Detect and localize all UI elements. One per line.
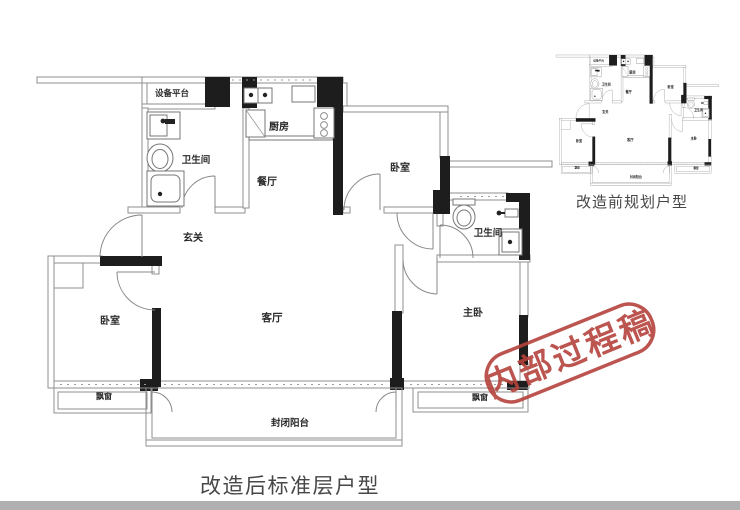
floorplan-image: 设备平台 卫生间 厨房 餐厅 玄关 卧室 卧室 客厅 卫生间 主卧 飘窗 飘窗 … [0, 0, 740, 510]
room-label-master-bedroom: 主卧 [463, 306, 483, 319]
room-label-entry: 玄关 [183, 231, 203, 244]
kitchen-counter-icon [292, 86, 315, 102]
room-label-bathroom-1: 卫生间 [182, 154, 211, 166]
floorplan-svg: 设备平台 卫生间 厨房 餐厅 玄关 卧室 卧室 客厅 卫生间 主卧 飘窗 飘窗 … [0, 0, 740, 510]
kitchen-sink-icon [244, 88, 272, 103]
toilet-2-icon [453, 199, 475, 229]
room-label-balcony: 封闭阳台 [271, 417, 310, 429]
bathtub-icon [147, 171, 184, 206]
fridge-icon [246, 110, 265, 137]
room-label-bay-window-right: 飘窗 [472, 392, 488, 402]
room-label-bay-window-left: 飘窗 [96, 391, 112, 401]
room-label-kitchen: 厨房 [269, 120, 289, 133]
room-label-dining: 餐厅 [256, 175, 277, 188]
main-caption: 改造后标准层户型 [200, 474, 380, 498]
room-label-bathroom-2: 卫生间 [474, 227, 503, 239]
toilet-icon [147, 144, 173, 172]
stove-icon [314, 108, 334, 138]
room-label-living: 客厅 [261, 311, 283, 324]
footer-bar [0, 501, 740, 510]
room-label-equipment-platform: 设备平台 [155, 88, 190, 99]
thumbnail-caption: 改造前规划户型 [576, 193, 688, 211]
room-label-bedroom-top: 卧室 [390, 161, 410, 174]
room-label-bedroom-left: 卧室 [100, 314, 120, 327]
washbasin-icon [499, 229, 522, 255]
vanity-sink-icon [147, 112, 180, 139]
